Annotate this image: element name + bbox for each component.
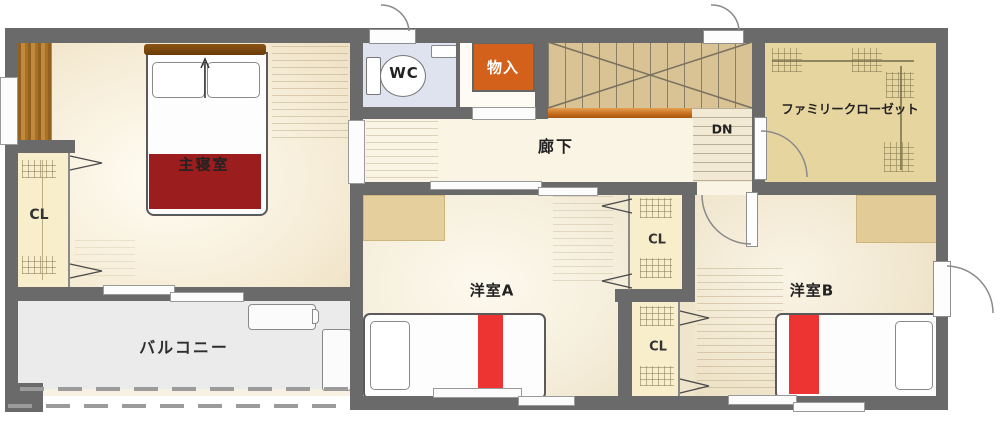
room-label-room-b-closet: CL — [649, 340, 667, 355]
closet-hanger-marks — [772, 48, 802, 72]
toilet-tank — [366, 57, 381, 95]
closet-hanger-marks — [640, 198, 672, 218]
wc-door-leaf — [369, 29, 416, 44]
label-stairs-down: DN — [712, 122, 733, 137]
floor-plan: 主寝室 CL WC 物入 廊下 DN ファミリークローゼット 洋室A CL 洋室… — [0, 0, 1000, 424]
wall-family-closet-bottom — [752, 182, 948, 195]
pillow — [895, 321, 933, 390]
closet-hanger-marks — [640, 306, 674, 326]
wall-top — [10, 28, 948, 43]
closet-hanger-marks — [884, 142, 914, 172]
pillow — [207, 62, 260, 98]
room-b-bed-stripe — [789, 315, 819, 394]
room-a-bed — [363, 313, 546, 400]
room-a-window — [433, 388, 522, 398]
closet-b-door-line — [678, 302, 680, 396]
exterior-door-arc — [947, 266, 993, 313]
balcony-sliding-door — [170, 292, 244, 302]
room-label-master-bedroom: 主寝室 — [178, 154, 229, 175]
pillow — [152, 62, 205, 98]
wall-closet-a-right — [682, 182, 695, 302]
room-b-window — [793, 402, 865, 412]
room-label-master-closet: CL — [29, 207, 48, 223]
room-label-room-a: 洋室A — [470, 280, 515, 301]
room-a-sliding-door — [538, 187, 598, 196]
storage-door — [472, 107, 536, 120]
pillow — [370, 321, 410, 390]
exterior-door-leaf-right — [933, 261, 951, 317]
balcony-railing — [8, 404, 350, 408]
stairs-down-treads — [692, 108, 752, 182]
room-b-doorway-floor — [693, 182, 752, 195]
master-bedroom-sliding-door — [348, 120, 365, 184]
floor-texture — [697, 268, 783, 394]
wall-right — [936, 28, 948, 410]
closet-a-door-line — [628, 195, 630, 290]
room-label-room-a-closet: CL — [648, 233, 666, 248]
room-label-storage: 物入 — [487, 57, 519, 78]
wall-closet-b-left — [618, 289, 632, 396]
balcony-sliding-door — [103, 285, 175, 295]
floor-texture — [75, 240, 135, 282]
stairs-handrail — [548, 108, 692, 118]
balcony-storage-unit — [322, 329, 351, 391]
wall-wc-storage — [456, 42, 460, 107]
family-closet-door-leaf — [754, 117, 767, 180]
room-a-desk — [363, 195, 445, 241]
top-door-leaf — [703, 30, 744, 44]
ac-outdoor-unit-nub — [312, 309, 319, 324]
room-b-floor-lower-left — [680, 302, 695, 396]
room-label-balcony: バルコニー — [139, 334, 229, 358]
stairs-floor — [548, 42, 752, 108]
master-bed-headboard — [144, 44, 266, 55]
wood-panel-wall — [18, 42, 52, 142]
closet-hanger-marks — [852, 48, 882, 72]
closet-hanger-marks — [22, 256, 56, 274]
master-closet-door-line — [68, 153, 70, 287]
closet-hanger-marks — [640, 258, 672, 278]
closet-hanger-marks — [886, 72, 914, 98]
room-label-room-b: 洋室B — [790, 280, 834, 301]
wall-bedroom-right — [350, 28, 363, 410]
room-a-window — [518, 396, 575, 406]
window-left-wall — [0, 77, 18, 145]
floor-texture — [272, 46, 348, 138]
room-a-bed-stripe — [478, 315, 503, 394]
closet-hanger-marks — [640, 366, 674, 386]
room-a-sliding-door — [430, 181, 542, 190]
closet-hanger-marks — [22, 160, 56, 178]
room-label-wc: WC — [389, 64, 419, 82]
wc-shelf — [431, 45, 457, 58]
floor-texture — [553, 196, 613, 284]
wall-storage-stairs — [535, 28, 548, 119]
room-b-window — [728, 395, 797, 405]
master-bed — [146, 52, 268, 216]
room-b-bed — [775, 313, 940, 400]
room-label-family-closet: ファミリークローゼット — [781, 99, 919, 118]
ac-outdoor-unit — [248, 304, 316, 330]
floor-texture — [366, 121, 438, 181]
room-b-door-leaf — [746, 192, 758, 247]
room-b-cabinet — [856, 195, 938, 243]
room-label-hallway: 廊下 — [538, 133, 574, 157]
balcony-railing — [20, 387, 350, 391]
